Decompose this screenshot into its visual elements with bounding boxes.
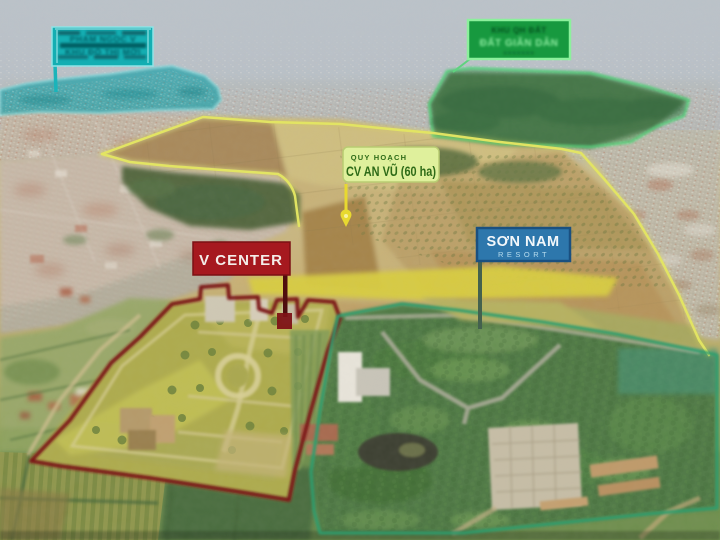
- svg-text:RESORT: RESORT: [498, 250, 550, 259]
- svg-text:KHU QH ĐẤT: KHU QH ĐẤT: [491, 25, 546, 35]
- svg-text:≡≡≡≡≡≡≡: ≡≡≡≡≡≡≡: [503, 51, 535, 57]
- svg-text:KHU ĐÔ THỊ MỚI: KHU ĐÔ THỊ MỚI: [65, 46, 141, 57]
- svg-text:ĐẤT GIÃN DÂN: ĐẤT GIÃN DÂN: [480, 36, 559, 49]
- svg-text:CV AN VŨ (60 ha): CV AN VŨ (60 ha): [346, 162, 436, 179]
- svg-text:PHẠM NGỌC V: PHẠM NGỌC V: [70, 34, 136, 44]
- svg-text:QUY HOẠCH: QUY HOẠCH: [351, 153, 408, 162]
- svg-text:SƠN NAM: SƠN NAM: [486, 234, 559, 250]
- svg-text:V CENTER: V CENTER: [199, 252, 283, 269]
